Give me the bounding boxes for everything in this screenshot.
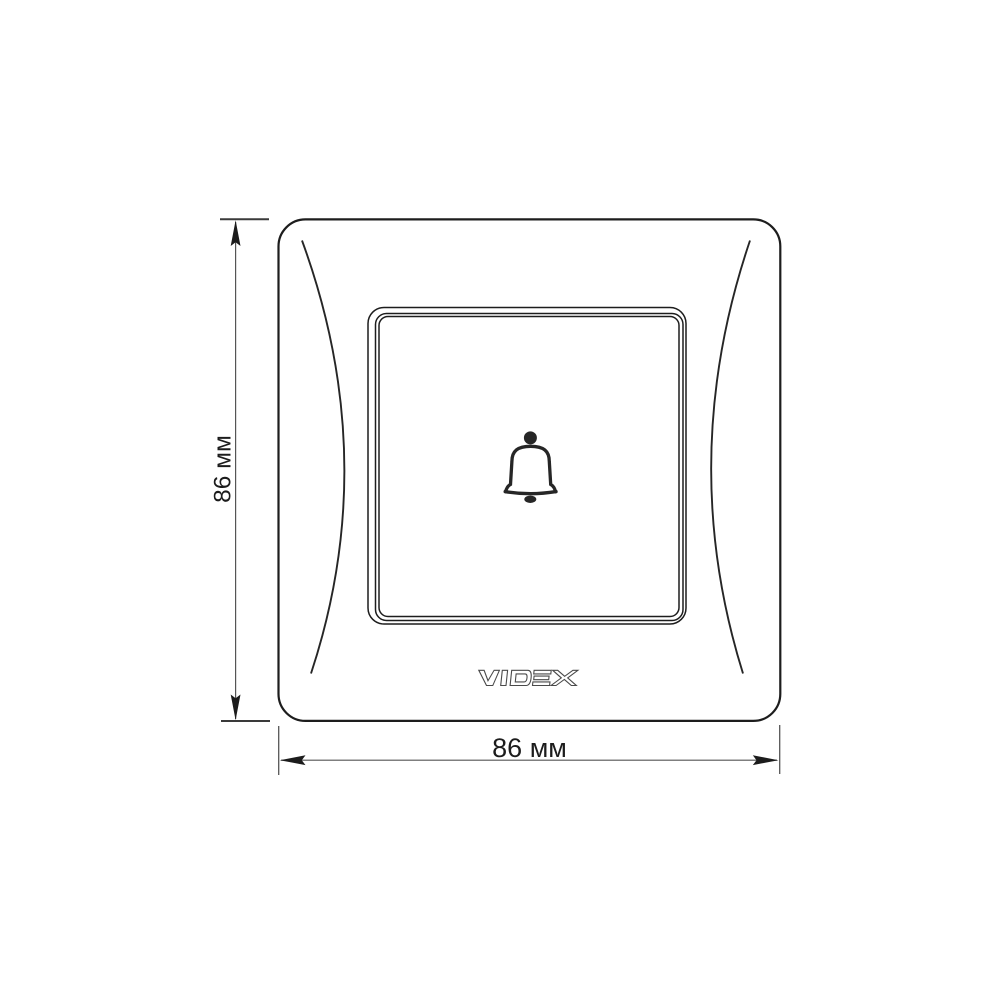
- svg-text:86 мм: 86 мм: [492, 733, 567, 763]
- svg-text:86 мм: 86 мм: [210, 435, 237, 503]
